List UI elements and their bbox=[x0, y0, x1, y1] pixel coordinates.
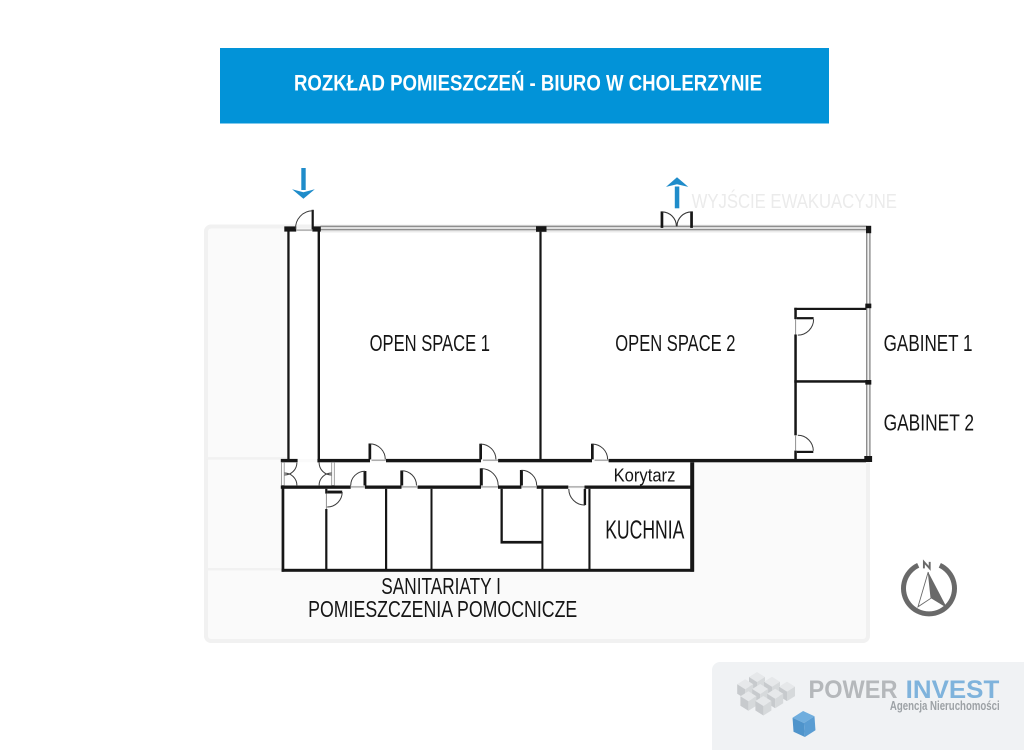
svg-text:Korytarz: Korytarz bbox=[614, 465, 676, 486]
svg-text:POMIESZCZENIA POMOCNICZE: POMIESZCZENIA POMOCNICZE bbox=[308, 596, 577, 622]
svg-text:ROZKŁAD POMIESZCZEŃ - BIURO W: ROZKŁAD POMIESZCZEŃ - BIURO W CHOLERZYNI… bbox=[294, 71, 762, 96]
svg-text:Agencja Nieruchomości: Agencja Nieruchomości bbox=[890, 698, 1000, 713]
svg-text:GABINET 1: GABINET 1 bbox=[884, 330, 973, 356]
svg-text:WYJŚCIE EWAKUACYJNE: WYJŚCIE EWAKUACYJNE bbox=[692, 189, 897, 213]
svg-text:GABINET 2: GABINET 2 bbox=[884, 410, 974, 436]
svg-text:OPEN SPACE 2: OPEN SPACE 2 bbox=[615, 330, 735, 356]
svg-text:KUCHNIA: KUCHNIA bbox=[605, 515, 685, 545]
svg-text:POWER: POWER bbox=[809, 676, 898, 704]
svg-text:OPEN SPACE 1: OPEN SPACE 1 bbox=[370, 330, 490, 356]
